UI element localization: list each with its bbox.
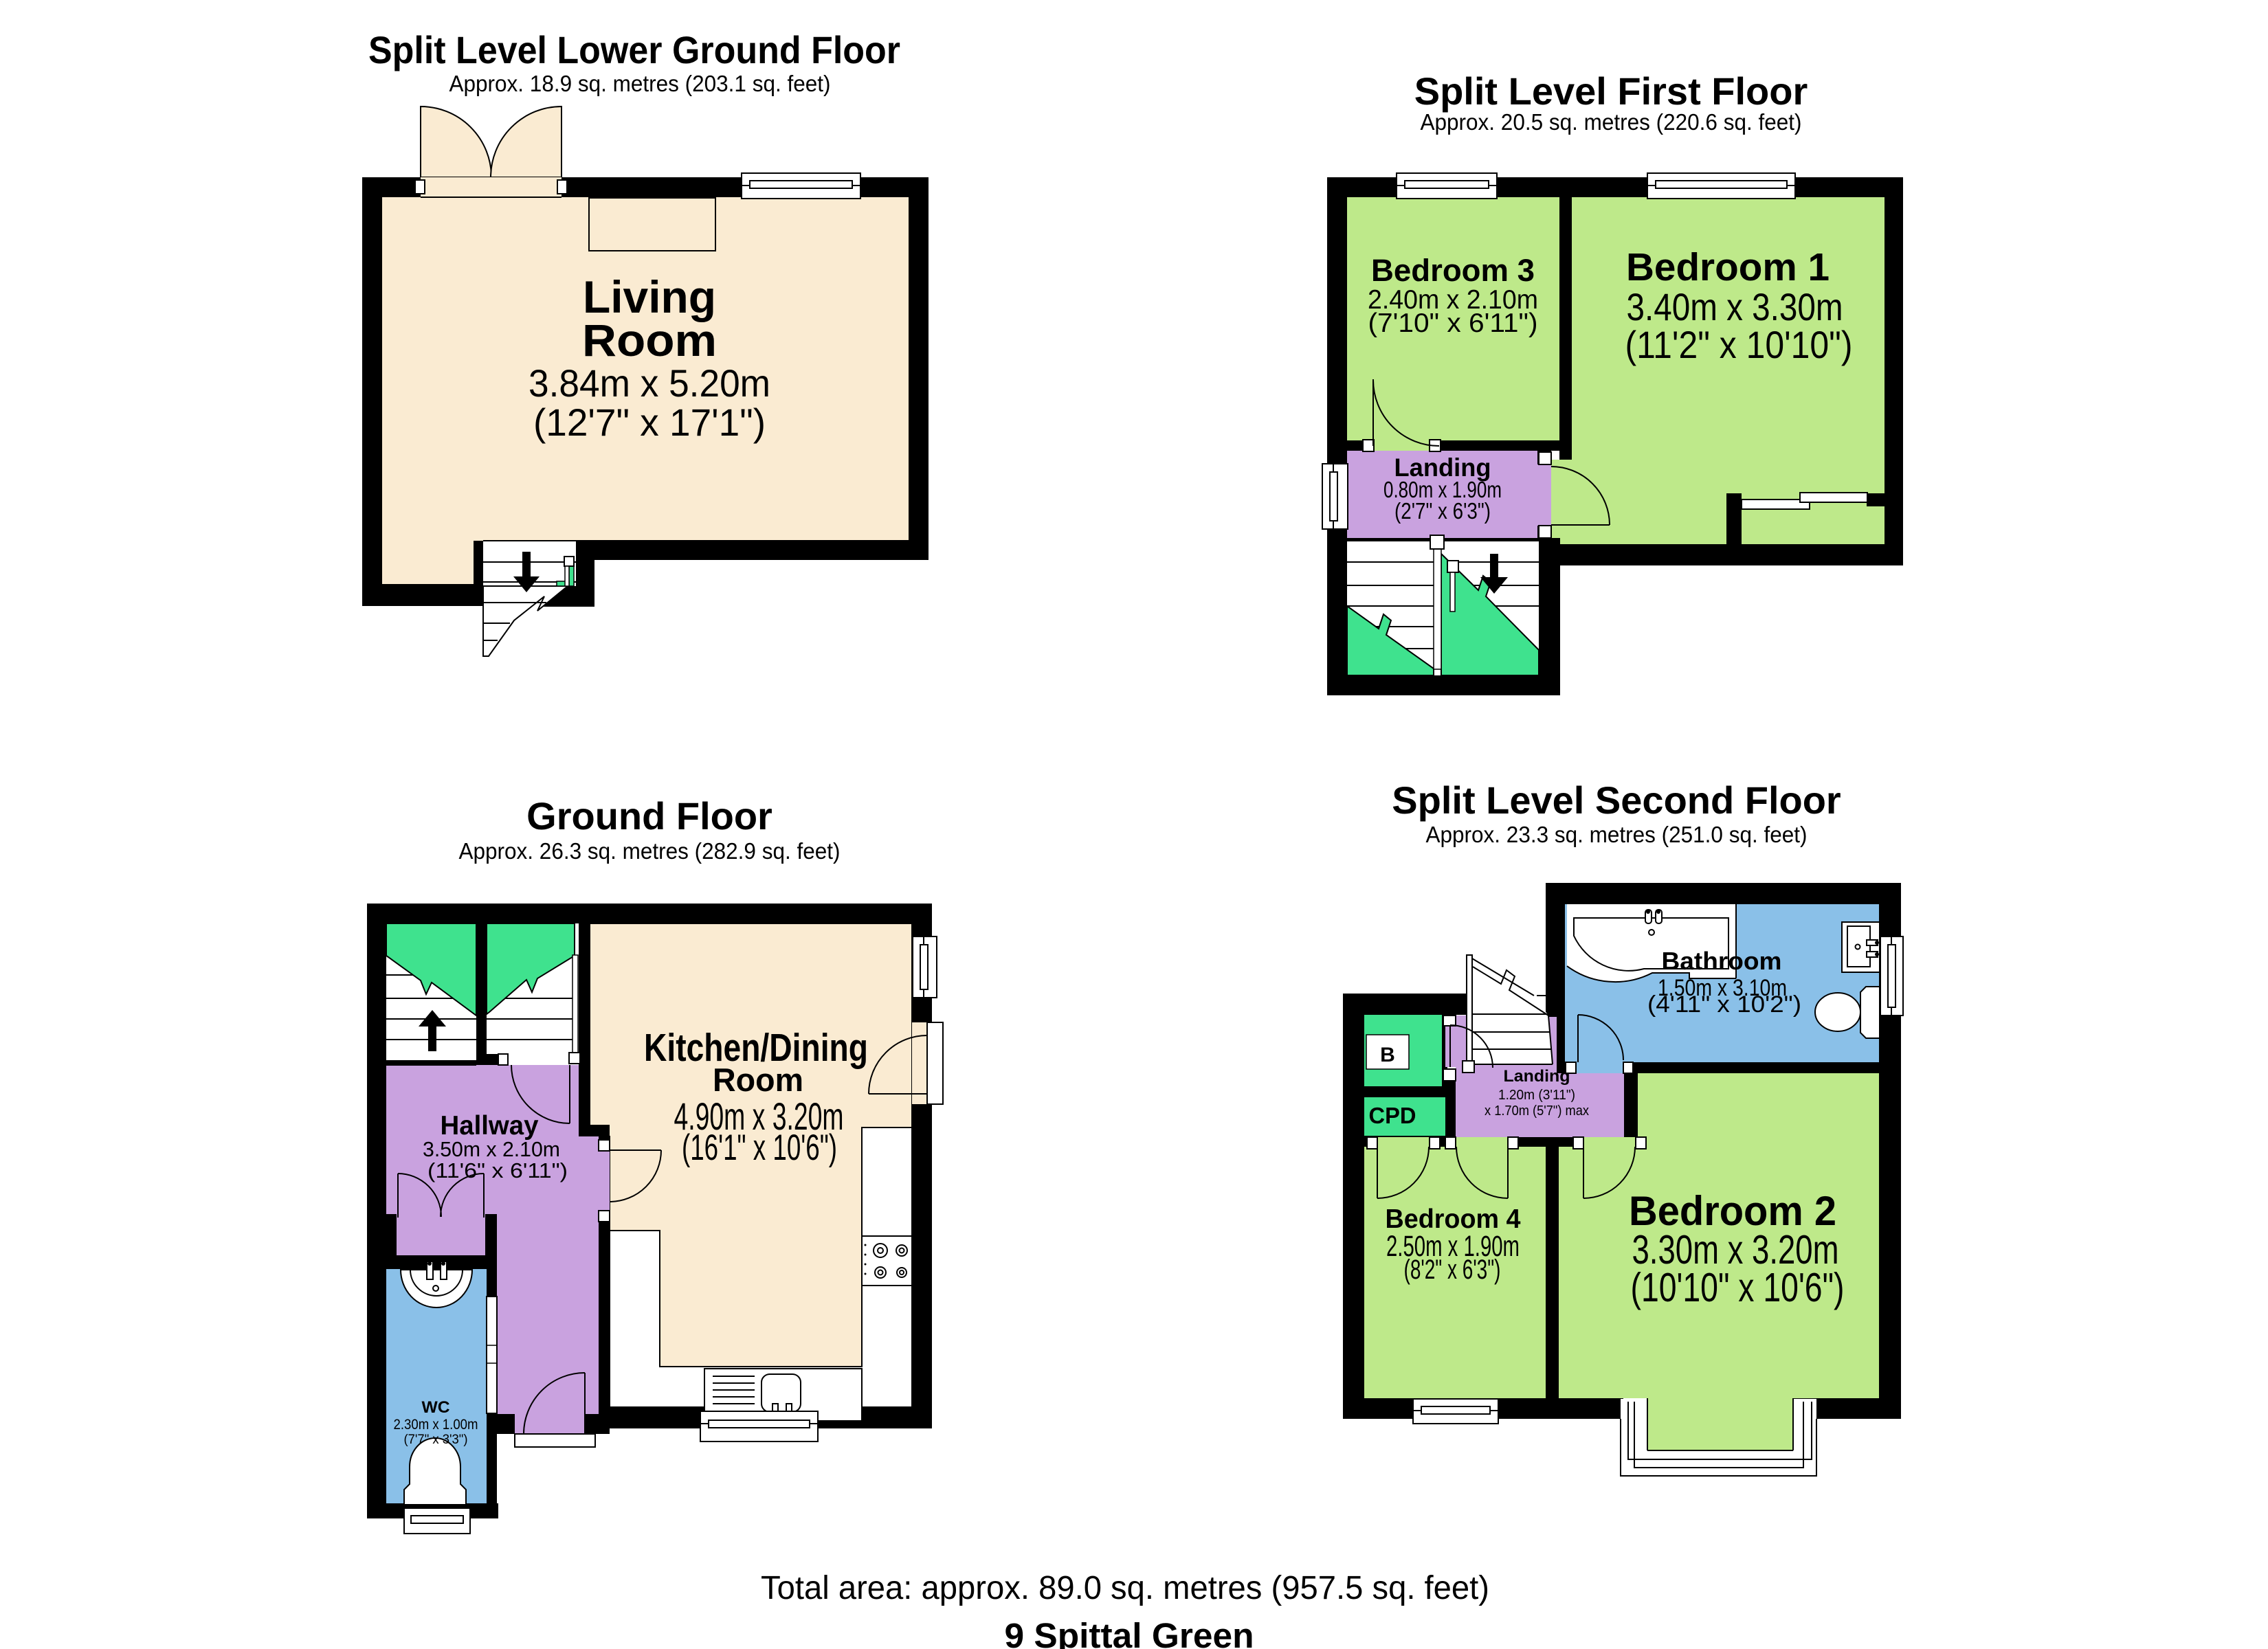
svg-text:Approx. 20.5 sq. metres (220.6: Approx. 20.5 sq. metres (220.6 sq. feet) (1421, 109, 1802, 135)
svg-text:Split Level First Floor: Split Level First Floor (1414, 69, 1808, 113)
svg-text:Room: Room (713, 1062, 803, 1098)
svg-text:Approx. 26.3 sq. metres (282.9: Approx. 26.3 sq. metres (282.9 sq. feet) (459, 838, 841, 864)
svg-text:Approx. 23.3 sq. metres (251.0: Approx. 23.3 sq. metres (251.0 sq. feet) (1426, 822, 1808, 847)
svg-text:Bedroom 1: Bedroom 1 (1626, 245, 1830, 289)
svg-text:(11'6" x 6'11"): (11'6" x 6'11") (427, 1158, 568, 1182)
svg-text:(16'1" x 10'6"): (16'1" x 10'6") (682, 1128, 837, 1168)
svg-text:Ground Floor: Ground Floor (526, 794, 772, 838)
svg-text:Bathroom: Bathroom (1662, 947, 1782, 975)
svg-text:Room: Room (582, 315, 717, 366)
svg-text:WC: WC (422, 1398, 450, 1417)
svg-text:Total area: approx. 89.0 sq. m: Total area: approx. 89.0 sq. metres (957… (761, 1570, 1489, 1606)
svg-text:(12'7" x 17'1"): (12'7" x 17'1") (533, 401, 766, 444)
svg-text:(11'2" x 10'10"): (11'2" x 10'10") (1625, 323, 1853, 366)
svg-text:CPD: CPD (1369, 1103, 1416, 1128)
svg-text:1.20m (3'11"): 1.20m (3'11") (1498, 1088, 1575, 1103)
svg-text:(8'2" x 6'3"): (8'2" x 6'3") (1404, 1255, 1501, 1285)
svg-text:Bedroom 3: Bedroom 3 (1371, 253, 1535, 288)
svg-text:(4'11" x 10'2"): (4'11" x 10'2") (1647, 991, 1801, 1018)
svg-text:2.30m x 1.00m: 2.30m x 1.00m (394, 1417, 478, 1433)
svg-text:(7'7" x 3'3"): (7'7" x 3'3") (404, 1433, 468, 1447)
svg-text:3.40m x 3.30m: 3.40m x 3.30m (1627, 285, 1843, 328)
svg-text:(10'10" x 10'6"): (10'10" x 10'6") (1631, 1265, 1845, 1310)
svg-text:(7'10" x 6'11"): (7'10" x 6'11") (1368, 309, 1538, 338)
svg-text:B: B (1380, 1044, 1395, 1066)
svg-text:Split Level Second Floor: Split Level Second Floor (1392, 778, 1841, 822)
svg-text:x 1.70m (5'7") max: x 1.70m (5'7") max (1485, 1103, 1589, 1119)
svg-text:Hallway: Hallway (441, 1111, 539, 1141)
svg-text:Approx. 18.9 sq. metres (203.1: Approx. 18.9 sq. metres (203.1 sq. feet) (449, 71, 831, 96)
svg-text:3.50m x 2.10m: 3.50m x 2.10m (423, 1137, 560, 1161)
svg-text:(2'7" x 6'3"): (2'7" x 6'3") (1394, 498, 1491, 524)
svg-text:Split Level Lower Ground Floor: Split Level Lower Ground Floor (368, 28, 900, 71)
svg-text:3.84m x 5.20m: 3.84m x 5.20m (529, 361, 770, 405)
svg-text:Landing: Landing (1504, 1067, 1570, 1086)
svg-text:9 Spittal Green: 9 Spittal Green (1005, 1616, 1254, 1649)
